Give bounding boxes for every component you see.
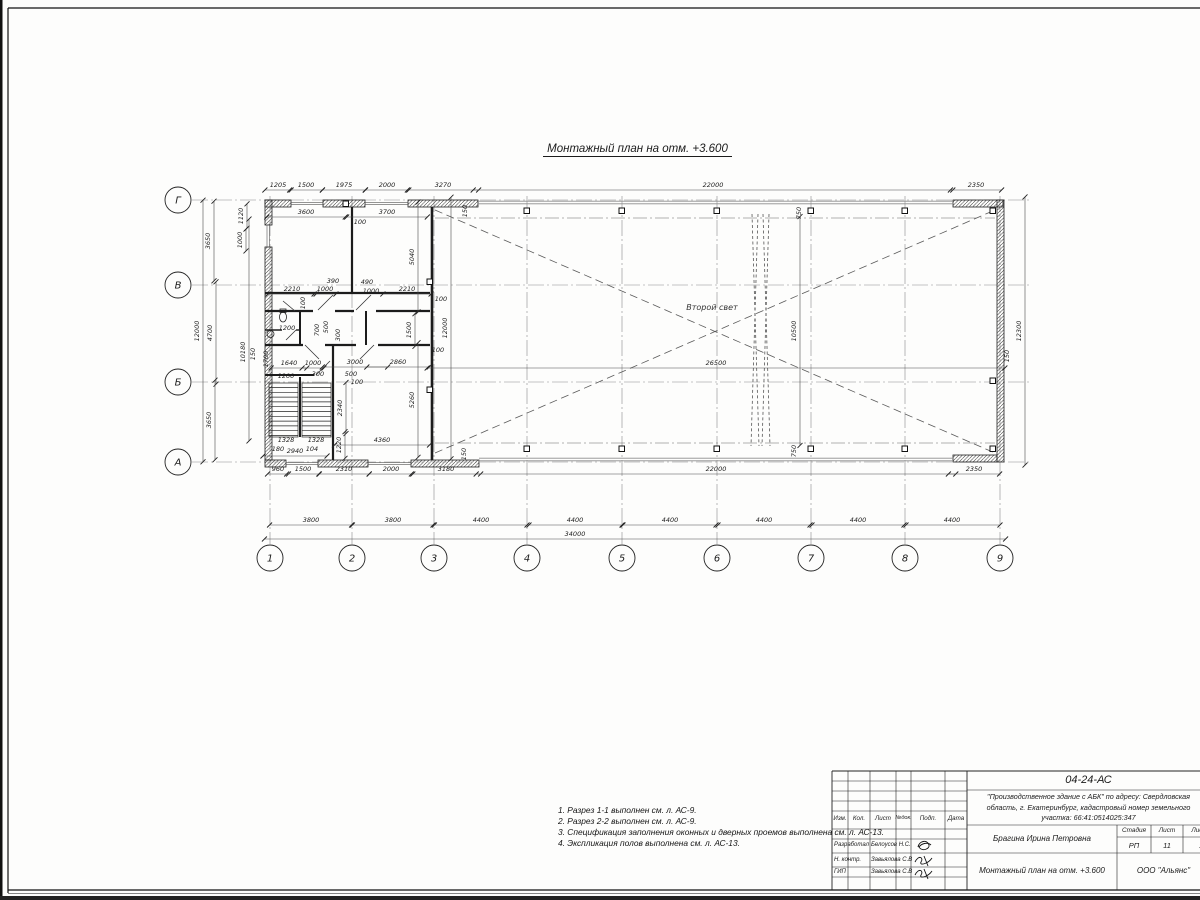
dimension: 4360: [332, 436, 432, 448]
dimension: 3600: [264, 208, 347, 220]
dimension: 10180: [239, 217, 252, 444]
author-name: Брагина Ирина Петровна: [967, 834, 1117, 843]
plan-title-text: Монтажный план на отм. +3.600: [543, 143, 732, 157]
dimension: 3800: [349, 516, 437, 528]
dimension-label: 104: [306, 445, 318, 453]
project-name-line1: "Производственное здание с АБК" по адрес…: [967, 792, 1200, 801]
column-marker: [427, 387, 433, 393]
dimension-label: 4360: [374, 436, 391, 444]
sheets-value: 13: [1183, 841, 1200, 850]
dimension: 1500: [284, 465, 322, 477]
dimension-label: 2860: [390, 358, 407, 366]
toilet-icon: [280, 312, 287, 322]
sheet-frame: [0, 0, 1200, 900]
dimension-label: 3800: [303, 516, 320, 524]
dimension-label: 3600: [298, 208, 315, 216]
role-developed: Разработал: [834, 842, 869, 848]
dimension: 4400: [808, 516, 909, 528]
dimension-label: 3000: [347, 358, 364, 366]
dimension-label: 100: [351, 378, 363, 386]
dimension-label: 960: [272, 465, 284, 473]
column-marker: [990, 378, 996, 384]
dimension-label: 1000: [317, 285, 334, 293]
column-marker: [427, 279, 433, 285]
dimension: 1975: [320, 181, 368, 193]
dimension: 2340: [336, 380, 349, 436]
dimension: 490: [361, 278, 373, 286]
dimension-label: 1500: [298, 181, 315, 189]
note-item: 4. Экспликация полов выполнена см. л. АС…: [558, 838, 810, 849]
dimension: 22000: [471, 181, 956, 193]
dimension: 12300: [1015, 194, 1028, 467]
plan-title: Монтажный план на отм. +3.600: [520, 143, 755, 155]
signature-zavyalova-1: [915, 856, 932, 866]
axis-label-col: 4: [524, 554, 530, 565]
column-marker: [619, 208, 625, 214]
axis-label-col: 2: [349, 554, 355, 565]
dimension-label: 22000: [706, 465, 727, 473]
axis-label-col: 8: [902, 554, 908, 565]
dimension: 1200: [278, 372, 295, 380]
dimension: 100: [435, 295, 447, 303]
dimension: 4400: [620, 516, 721, 528]
dimension-label: 12000: [193, 321, 201, 342]
dimension-label: 1000: [305, 359, 322, 367]
dimension-label: 3800: [385, 516, 402, 524]
dimension-layer: 1205150019752000327022000235036003700150…: [193, 181, 1028, 542]
offset-axis-lines: [435, 218, 995, 443]
col-list: Лист: [870, 815, 896, 822]
dimension: 100: [351, 378, 363, 386]
dimension: 3650: [204, 199, 217, 284]
dimension-label: 2340: [336, 400, 344, 417]
dimension: 150: [461, 205, 469, 217]
dimension: 3270: [405, 181, 481, 193]
sheets-label: Листов: [1183, 827, 1200, 834]
column-marker: [619, 446, 625, 452]
signature-zavyalova-2: [915, 869, 932, 879]
hall-second-light-label: Второй свет: [686, 303, 738, 312]
dimension-label: 1700: [262, 351, 270, 368]
col-ndok: №док.: [895, 815, 912, 821]
note-item: 1. Разрез 1-1 выполнен см. л. АС-9.: [558, 805, 810, 816]
dimension-label: 10500: [790, 321, 798, 342]
axis-label-col: 7: [808, 554, 815, 565]
dimension: 500: [345, 370, 357, 378]
axis-label-col: 1: [267, 554, 273, 565]
axis-label-row: А: [174, 458, 182, 469]
dimension-label: 300: [312, 370, 324, 378]
dimension: 34000: [262, 530, 1008, 542]
dimension-label: 4400: [944, 516, 961, 524]
dimension-label: 100: [432, 346, 444, 354]
dimension: 2000: [363, 181, 412, 193]
column-marker: [808, 446, 814, 452]
dimension-label: 3650: [205, 412, 213, 429]
column-marker: [714, 208, 720, 214]
dimension-label: 5040: [408, 249, 416, 266]
dimension-label: 3180: [438, 465, 455, 473]
dimension-label: 100: [354, 218, 366, 226]
dimension-label: 1000: [363, 287, 380, 295]
name-developed: Белоусов Н.С.: [871, 842, 911, 848]
dimension-label: 1200: [279, 324, 296, 332]
dimension: 2350: [946, 465, 1002, 477]
dimension-label: 12000: [441, 318, 449, 339]
dimension-label: 1200: [278, 372, 295, 380]
axis-label-col: 3: [431, 554, 437, 565]
dimension-label: 1500: [405, 322, 413, 339]
dimension-label: 4400: [756, 516, 773, 524]
dimension-label: 500: [322, 321, 330, 333]
dimension-label: 4400: [850, 516, 867, 524]
dimension: 4400: [714, 516, 815, 528]
column-marker: [902, 446, 908, 452]
dimension: 150: [249, 348, 257, 360]
dimension-label: 100: [299, 297, 307, 309]
dimension-label: 750: [790, 445, 798, 457]
dimension: 1640: [269, 359, 310, 371]
dimension-label: 3700: [379, 208, 396, 216]
dimension-label: 1328: [308, 436, 325, 444]
col-izm: Изм.: [832, 815, 848, 822]
dimension-label: 500: [345, 370, 357, 378]
stage-label: Стадия: [1117, 827, 1151, 834]
dimension: 1000: [236, 227, 249, 254]
dimension-label: 22000: [703, 181, 724, 189]
dimension-label: 490: [361, 278, 373, 286]
dimension-label: 1000: [236, 232, 244, 249]
note-item: 3. Спецификация заполнения оконных и две…: [558, 827, 810, 838]
column-marker: [990, 208, 996, 214]
dimension: 5260: [408, 340, 421, 460]
project-name-line3: участка: 66:41:0514025:347: [967, 813, 1200, 822]
axis-label-row: В: [175, 281, 182, 292]
company-name: ООО "Альянс": [1117, 866, 1200, 875]
dimension: 4400: [431, 516, 532, 528]
column-marker: [990, 446, 996, 452]
dimension: 180: [272, 445, 284, 453]
dimension: 750: [790, 445, 798, 457]
role-ncontrol: Н. контр.: [834, 857, 861, 863]
signature-belousov: [918, 841, 931, 849]
dimension: 2860: [364, 358, 431, 370]
column-marker: [902, 208, 908, 214]
dimension-label: 1640: [281, 359, 298, 367]
dimension: 100: [354, 218, 366, 226]
column-marker: [714, 446, 720, 452]
dimension: 2350: [948, 181, 1004, 193]
dimension-label: 3270: [435, 181, 452, 189]
dimension: 104: [306, 445, 318, 453]
dimension-label: 1205: [270, 181, 287, 189]
dimension-label: 150: [1003, 350, 1011, 362]
dimension-label: 150: [461, 205, 469, 217]
dimension-label: 2000: [379, 181, 396, 189]
dimension-label: 4700: [206, 325, 214, 342]
dimension: 3000: [320, 358, 390, 370]
axis-label-col: 5: [619, 554, 625, 565]
dimension: 2210: [265, 285, 318, 297]
dimension: 1000: [363, 287, 380, 295]
doc-number: 04-24-АС: [967, 774, 1200, 786]
column-marker: [524, 446, 530, 452]
dimension: 150: [460, 448, 468, 460]
dimension-label: 1328: [278, 436, 295, 444]
dimension-label: 150: [249, 348, 257, 360]
dimension: 700: [313, 324, 321, 336]
axis-grid: 123456789ГВБА: [165, 187, 1032, 571]
dimension: 26500: [425, 359, 1008, 371]
dimension-label: 2310: [336, 465, 353, 473]
dimension-label: 10180: [239, 342, 247, 363]
dimension-label: 2350: [966, 465, 983, 473]
dimension-label: 3650: [204, 233, 212, 250]
signatures: [915, 841, 932, 879]
dimension-label: 1500: [295, 465, 312, 473]
hall-cross-bracing: [435, 210, 995, 453]
dimension-label: 2940: [287, 447, 304, 455]
dimension: 1328: [308, 436, 325, 444]
sheet-label: Лист: [1151, 827, 1183, 834]
role-gip: ГИП: [834, 869, 846, 875]
dimension-label: 26500: [706, 359, 727, 367]
axis-label-row: Б: [175, 378, 182, 389]
axis-label-col: 9: [997, 554, 1003, 565]
stage-value: РП: [1117, 841, 1151, 850]
dimension: 3650: [205, 378, 218, 463]
dimension-label: 4400: [662, 516, 679, 524]
dimension: 300: [312, 370, 324, 378]
dimension: 150: [1003, 350, 1011, 362]
dimension: 2000: [367, 465, 416, 477]
column-marker: [808, 208, 814, 214]
dimension: 3800: [267, 516, 355, 528]
col-podp: Подп.: [911, 815, 945, 822]
dimension-label: 2000: [383, 465, 400, 473]
name-gip: Завьялова С.В: [871, 869, 912, 875]
hidden-shaft-lines: [751, 214, 770, 446]
drawing-sheet: 123456789ГВБА: [0, 0, 1200, 900]
dimension: 1700: [262, 351, 270, 368]
dimension-label: 5260: [408, 392, 416, 409]
dimension-label: 12300: [1015, 321, 1023, 342]
dimension-label: 150: [460, 448, 468, 460]
col-data: Дата: [945, 815, 967, 822]
exterior-walls: [265, 200, 1004, 467]
dimension: 1328: [278, 436, 295, 444]
dimension-label: 1975: [336, 181, 353, 189]
dimension: 300: [334, 329, 342, 341]
dimension: 10500: [790, 214, 803, 448]
dimension: 390: [327, 277, 339, 285]
notes: 1. Разрез 1-1 выполнен см. л. АС-9.2. Ра…: [558, 805, 810, 849]
column-marker: [343, 201, 349, 207]
dimension-label: 2210: [399, 285, 416, 293]
dimension-label: 700: [313, 324, 321, 336]
dimension: 1500: [287, 181, 325, 193]
sheet-value: 11: [1151, 841, 1183, 850]
dimension-label: 4400: [567, 516, 584, 524]
dimension: 1200: [279, 324, 296, 332]
dimension-label: 300: [334, 329, 342, 341]
project-name-line2: область, г. Екатеринбург, кадастровый но…: [967, 803, 1200, 812]
dimension-label: 2210: [284, 285, 301, 293]
dimension: 4400: [902, 516, 1003, 528]
dimension-label: 1120: [237, 208, 245, 225]
dimension: 500: [322, 321, 330, 333]
dimension-label: 2350: [968, 181, 985, 189]
drawing-title: Монтажный план на отм. +3.600: [967, 866, 1117, 875]
col-kol: Кол.: [848, 815, 870, 822]
dimension-label: 750: [795, 207, 803, 219]
dimension-label: 4400: [473, 516, 490, 524]
plan-drawing: 123456789ГВБА: [0, 0, 1200, 900]
column-marker: [524, 208, 530, 214]
dimension: 4700: [206, 279, 219, 386]
dimension: 4400: [525, 516, 626, 528]
dimension: 22000: [474, 465, 959, 477]
dimension: 1500: [405, 311, 418, 349]
note-item: 2. Разрез 2-2 выполнен см. л. АС-9.: [558, 816, 810, 827]
dimension: 2210: [380, 285, 433, 297]
dimension-label: 100: [435, 295, 447, 303]
dimension: 100: [432, 346, 444, 354]
dimension: 12000: [441, 195, 454, 462]
dimension: 100: [299, 297, 307, 309]
dimension: 1120: [237, 201, 250, 230]
axis-label-row: Г: [175, 196, 182, 207]
axis-label-col: 6: [714, 554, 720, 565]
dimension-label: 34000: [565, 530, 586, 538]
dimension: 750: [795, 207, 803, 219]
name-ncontrol: Завьялова С.В: [871, 857, 912, 863]
dimension-label: 180: [272, 445, 284, 453]
dimension-label: 390: [327, 277, 339, 285]
